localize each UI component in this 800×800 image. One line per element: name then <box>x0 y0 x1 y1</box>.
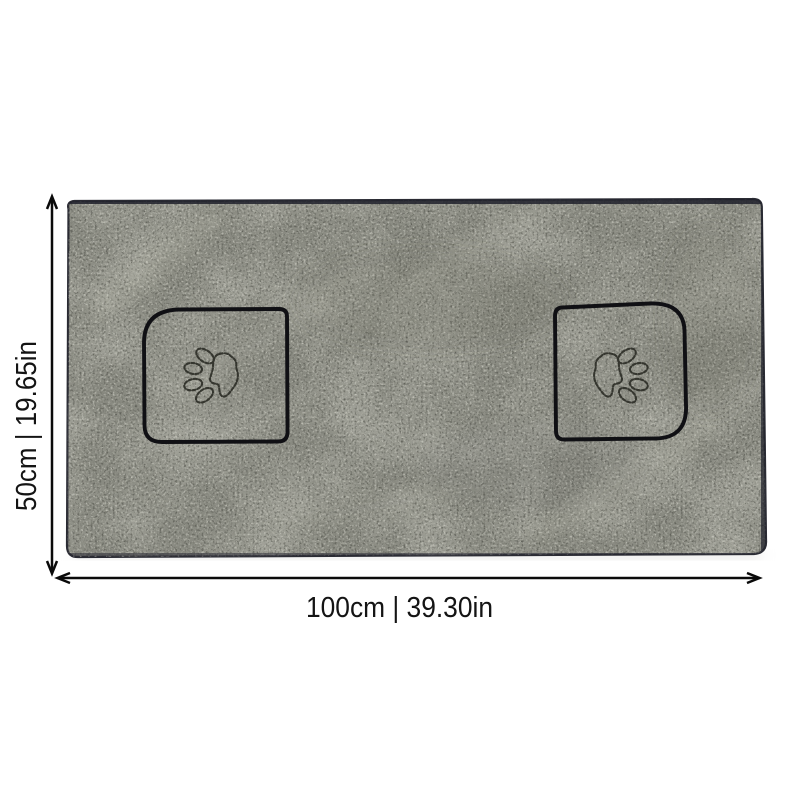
svg-text:50cm | 19.65in: 50cm | 19.65in <box>11 341 43 511</box>
svg-text:100cm | 39.30in: 100cm | 39.30in <box>306 592 493 624</box>
